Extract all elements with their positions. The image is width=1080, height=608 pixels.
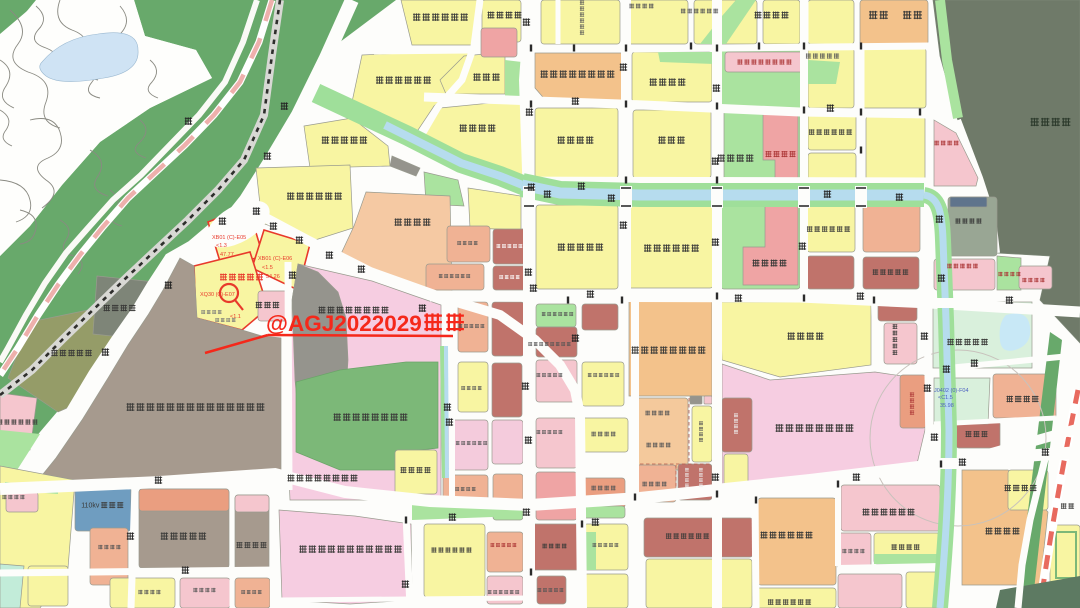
svg-text:XB01 (C)-E06: XB01 (C)-E06 [258, 256, 292, 262]
svg-text:54.26: 54.26 [266, 274, 280, 280]
svg-text:XQ30 (C)-E07: XQ30 (C)-E07 [200, 292, 235, 298]
svg-text:110kv: 110kv [81, 503, 100, 510]
svg-text:<1.5: <1.5 [262, 265, 273, 271]
svg-text:35.98: 35.98 [940, 403, 954, 409]
svg-text:47.77: 47.77 [220, 252, 234, 258]
svg-text:<1.3: <1.3 [216, 243, 227, 249]
svg-text:<1.1: <1.1 [230, 314, 241, 320]
svg-text:XB01 (C)-E05: XB01 (C)-E05 [212, 235, 246, 241]
svg-text:@AGJ2022029: @AGJ2022029 [266, 311, 422, 336]
svg-text:J0402 (0)-F04: J0402 (0)-F04 [934, 388, 969, 394]
svg-text:<C1.5: <C1.5 [938, 395, 953, 401]
